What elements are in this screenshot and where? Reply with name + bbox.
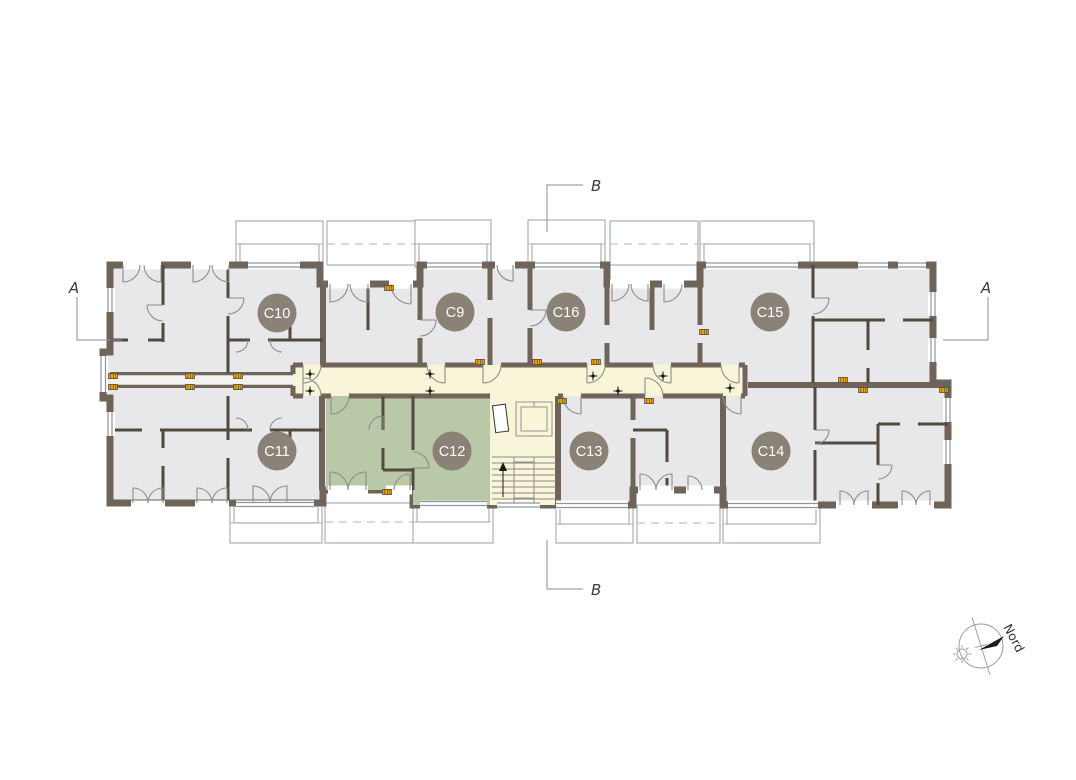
north-compass: Nord xyxy=(953,617,1028,675)
unit-badge-c14[interactable]: C14 xyxy=(752,432,791,471)
unit-badge-c15[interactable]: C15 xyxy=(751,293,790,332)
lobby-door-leaf xyxy=(492,404,508,432)
floor-plan-drawing: C10 C9 C16 C15 C11 C12 C13 C14 xyxy=(0,0,1076,780)
unit-badge-c9[interactable]: C9 xyxy=(436,293,475,332)
unit-badge-c11[interactable]: C11 xyxy=(258,432,297,471)
sun-icon xyxy=(953,645,971,663)
north-label: Nord xyxy=(1000,621,1027,654)
unit-label: C12 xyxy=(439,444,466,460)
unit-badge-c13[interactable]: C13 xyxy=(570,432,609,471)
north-arrow-icon xyxy=(979,636,1004,650)
section-letter: A xyxy=(980,279,991,297)
section-letter: B xyxy=(591,177,601,195)
section-marker-b-bottom: B xyxy=(547,540,601,599)
unit-badge-c16[interactable]: C16 xyxy=(547,293,586,332)
balconies-top xyxy=(236,220,814,267)
section-marker-a-right: A xyxy=(943,279,991,340)
corridor xyxy=(293,365,745,396)
unit-badge-c12[interactable]: C12 xyxy=(433,432,472,471)
unit-label: C16 xyxy=(553,305,580,321)
unit-label: C15 xyxy=(757,305,784,321)
unit-label: C11 xyxy=(264,444,290,460)
floor-plan-page: C10 C9 C16 C15 C11 C12 C13 C14 xyxy=(0,0,1076,780)
section-letter: A xyxy=(68,279,79,297)
unit-badge-c10[interactable]: C10 xyxy=(258,294,297,333)
unit-label: C9 xyxy=(446,305,465,321)
unit-label: C13 xyxy=(576,444,603,460)
unit-label: C14 xyxy=(758,444,785,460)
section-letter: B xyxy=(591,581,601,599)
unit-label: C10 xyxy=(264,306,291,322)
